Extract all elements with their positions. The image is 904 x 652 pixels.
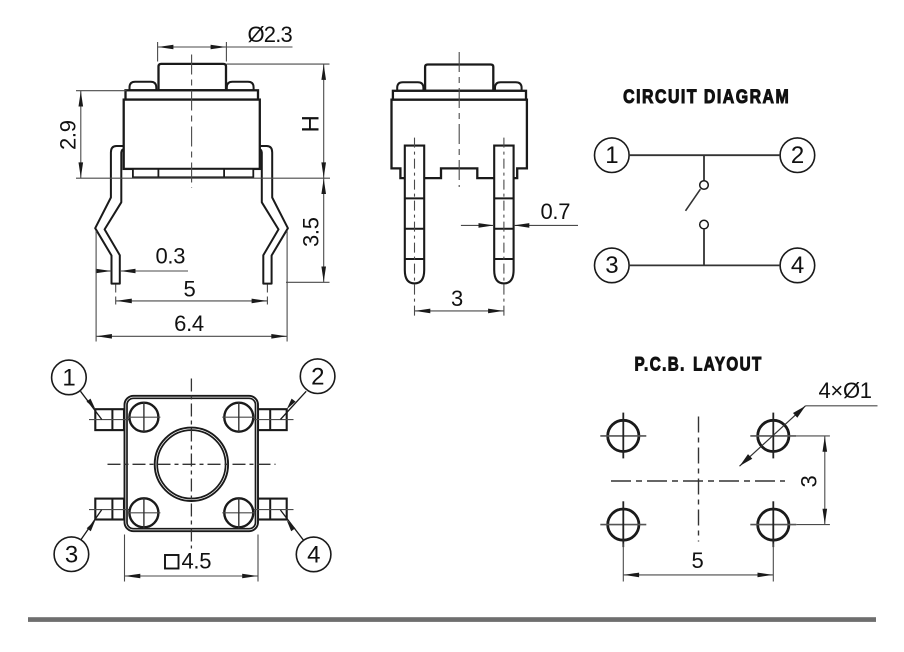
svg-text:Ø2.3: Ø2.3 xyxy=(248,22,293,47)
svg-text:1: 1 xyxy=(605,142,618,169)
svg-text:3: 3 xyxy=(797,476,822,488)
svg-text:3: 3 xyxy=(605,252,618,279)
svg-text:6.4: 6.4 xyxy=(174,311,204,336)
svg-text:4.5: 4.5 xyxy=(182,549,212,574)
svg-text:1: 1 xyxy=(62,365,75,392)
svg-text:5: 5 xyxy=(184,277,196,302)
svg-text:3.5: 3.5 xyxy=(299,217,324,247)
svg-text:P.C.B. LAYOUT: P.C.B. LAYOUT xyxy=(634,353,762,375)
svg-text:2: 2 xyxy=(791,142,804,169)
svg-text:CIRCUIT DIAGRAM: CIRCUIT DIAGRAM xyxy=(623,86,790,108)
svg-text:4: 4 xyxy=(791,252,804,279)
svg-text:0.3: 0.3 xyxy=(156,244,186,269)
svg-text:3: 3 xyxy=(451,286,463,311)
svg-text:2: 2 xyxy=(311,364,324,391)
svg-text:0.7: 0.7 xyxy=(541,199,571,224)
svg-text:H: H xyxy=(298,115,325,132)
svg-text:2.9: 2.9 xyxy=(56,120,81,150)
svg-text:4: 4 xyxy=(307,542,320,569)
svg-text:5: 5 xyxy=(692,548,704,573)
svg-text:4×Ø1: 4×Ø1 xyxy=(819,378,872,403)
svg-text:3: 3 xyxy=(65,542,78,569)
